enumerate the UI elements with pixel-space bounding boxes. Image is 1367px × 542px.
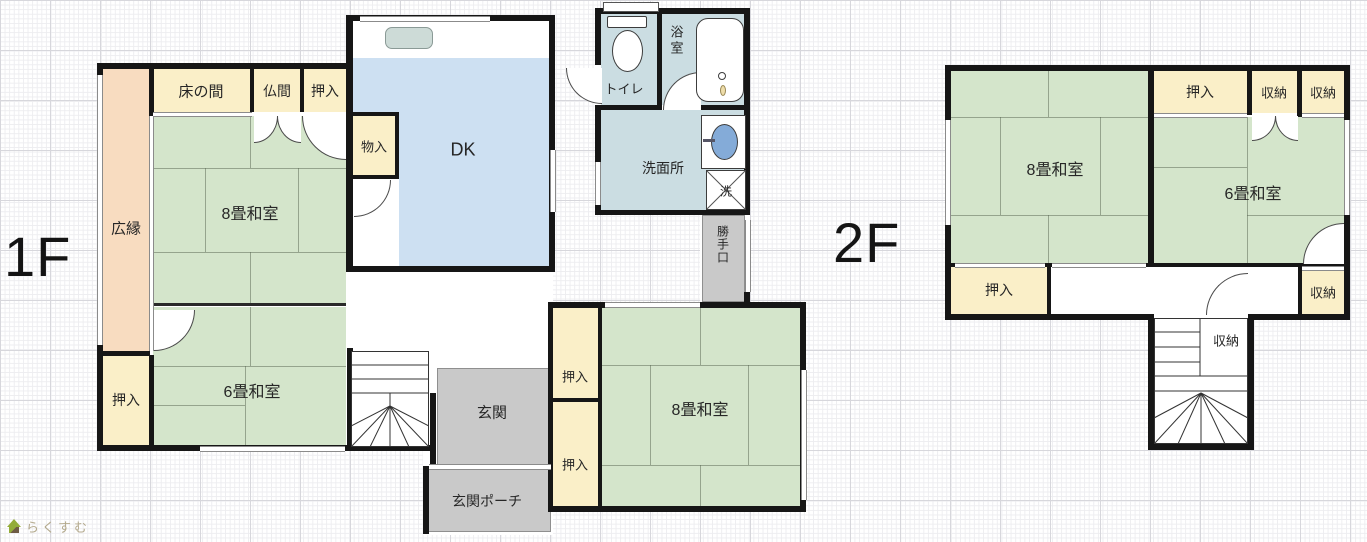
logo-text: らくすむ (26, 517, 90, 536)
wall-segment (1297, 65, 1302, 117)
toilet-tank-icon (607, 16, 647, 28)
wall-segment (1148, 65, 1154, 267)
label-2f-shuno-2: 収納 (1310, 83, 1336, 102)
floor-label-1f: 1F (4, 224, 71, 289)
wall-segment (97, 63, 353, 69)
tatami-line (1100, 117, 1101, 215)
tatami-line (602, 465, 800, 466)
sliding-door (1052, 263, 1146, 268)
tatami-line (205, 168, 206, 252)
kitchen-counter-icon (385, 27, 433, 49)
sliding-door (1302, 113, 1344, 118)
tatami-line (153, 405, 245, 406)
label-genkan: 玄関 (477, 402, 507, 423)
wall-segment (100, 351, 150, 356)
wall-segment (1148, 444, 1254, 450)
wall-segment (346, 15, 353, 272)
bathtub-drain-icon (718, 72, 726, 80)
room-dk (399, 112, 549, 266)
wall-segment (595, 8, 601, 65)
staircase-1f (351, 351, 429, 447)
label-oshiire-top: 押入 (311, 81, 339, 101)
tatami-line (951, 117, 1148, 118)
label-2f-oshiire-bottom: 押入 (985, 280, 1013, 300)
window (550, 150, 556, 212)
wall-segment (395, 112, 399, 179)
wall-segment (657, 8, 662, 107)
bathtub-handle-icon (720, 85, 726, 96)
tatami-line (951, 215, 1148, 216)
floor-label-2f: 2F (833, 210, 900, 275)
entrance-door (429, 464, 551, 470)
tatami-line (153, 168, 346, 169)
wall-segment (353, 175, 399, 179)
wall-segment (149, 355, 154, 445)
room-dk (353, 58, 549, 112)
window (603, 2, 659, 12)
wall-segment (548, 302, 553, 512)
sink-basin-icon (711, 124, 738, 160)
tatami-line (298, 168, 299, 252)
label-oshiire-a: 押入 (562, 367, 588, 386)
sliding-door (1154, 113, 1247, 118)
wall-segment (1247, 65, 1252, 115)
label-washroom: 洗面所 (642, 158, 684, 178)
wall-segment (700, 105, 750, 110)
sliding-door (955, 263, 1045, 268)
room-hiroen (103, 69, 149, 351)
label-dk: DK (450, 140, 475, 161)
wall-segment (549, 15, 555, 272)
tatami-line (1247, 215, 1344, 216)
sliding-door (1302, 266, 1344, 271)
kitchen-strip (353, 21, 549, 58)
window (200, 446, 345, 452)
back-door (745, 220, 751, 292)
label-washitsu8-main: 8畳和室 (222, 200, 279, 224)
wall-segment (595, 105, 601, 162)
wall-segment (551, 398, 600, 402)
tatami-line (153, 366, 346, 367)
wall-segment (548, 506, 806, 512)
house-icon (7, 519, 22, 534)
window (97, 75, 103, 345)
label-oshiire-left: 押入 (112, 390, 140, 410)
wall-segment (250, 66, 254, 112)
wall-segment (353, 112, 399, 116)
tatami-line (700, 308, 701, 365)
label-butsuma: 仏間 (263, 81, 291, 101)
logo: らくすむ (7, 517, 90, 536)
window (801, 370, 807, 500)
wall-segment (595, 105, 662, 110)
label-washer: 洗 (720, 183, 732, 200)
label-washitsu6: 6畳和室 (224, 378, 281, 402)
label-hiroen: 広縁 (111, 218, 141, 239)
window (1344, 120, 1350, 215)
label-2f-shuno-1: 収納 (1261, 83, 1287, 102)
label-toilet: トイレ (604, 79, 643, 98)
tatami-line (1048, 71, 1049, 117)
tatami-line (250, 252, 251, 303)
wall-segment (595, 210, 750, 215)
tatami-line (602, 365, 800, 366)
tatami-line (250, 307, 251, 366)
wall-segment (346, 266, 555, 272)
window (360, 16, 490, 22)
toilet-bowl-icon (612, 30, 643, 72)
label-monoire: 物入 (361, 137, 387, 156)
tatami-line (650, 365, 651, 465)
wall-segment (1248, 314, 1254, 450)
wall-segment (423, 466, 429, 534)
label-2f-oshiire-top: 押入 (1186, 82, 1214, 102)
label-washitsu8-south: 8畳和室 (672, 396, 729, 420)
label-2f-washitsu6: 6畳和室 (1225, 180, 1282, 204)
wall-segment (598, 308, 602, 506)
wall-segment (700, 302, 806, 308)
tatami-line (1000, 117, 1001, 215)
tatami-line (250, 116, 251, 168)
window (945, 120, 951, 225)
sliding-door (153, 112, 252, 117)
sink-faucet-icon (703, 139, 715, 142)
tatami-line (1154, 167, 1247, 168)
label-2f-washitsu8: 8畳和室 (1027, 156, 1084, 180)
sliding-door (605, 302, 700, 308)
sliding-door (595, 162, 601, 205)
door-arc (566, 68, 602, 104)
label-bath: 浴室 (667, 25, 686, 57)
label-2f-shuno-4: 収納 (1213, 331, 1239, 350)
label-oshiire-b: 押入 (562, 455, 588, 474)
tatami-line (1048, 215, 1049, 263)
tatami-line (748, 365, 749, 465)
floor-plan: 広縁 床の間 仏間 押入 8畳和室 6畳和室 押入 物入 DK トイレ 浴室 洗… (0, 0, 1367, 542)
tatami-line (700, 465, 701, 506)
label-porch: 玄関ポーチ (452, 491, 522, 511)
wall-segment (430, 393, 436, 468)
label-katteguchi: 勝手口 (715, 225, 732, 264)
wall-segment (153, 303, 346, 306)
label-2f-shuno-3: 収納 (1310, 283, 1336, 302)
wall-segment (1298, 266, 1302, 318)
wall-segment (548, 302, 605, 308)
label-tokonoma: 床の間 (178, 81, 223, 102)
wall-segment (149, 63, 154, 116)
wall-segment (300, 66, 304, 112)
wall-segment (1047, 263, 1051, 318)
